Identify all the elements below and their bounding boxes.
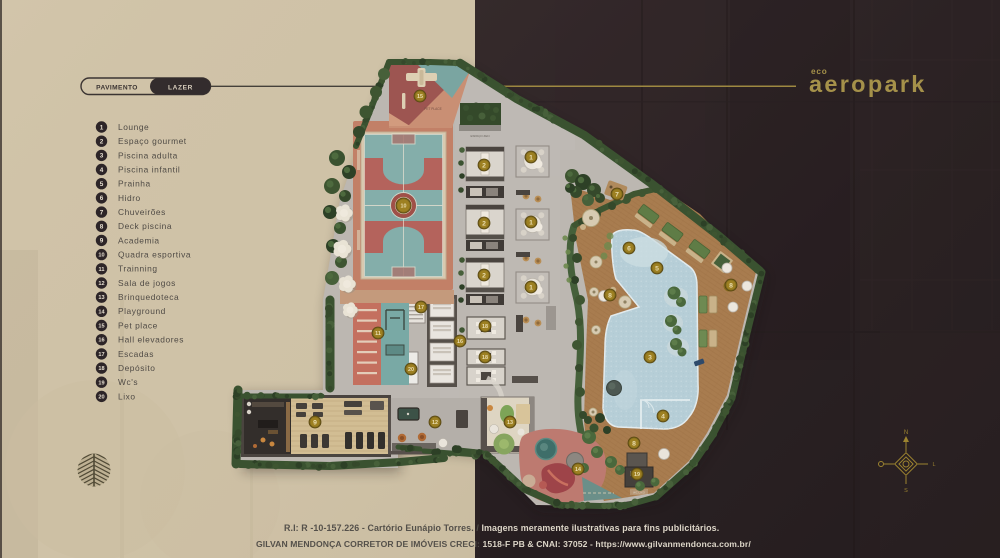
svg-text:Prainha: Prainha: [118, 179, 151, 189]
svg-text:16: 16: [98, 338, 104, 344]
svg-text:18: 18: [482, 324, 488, 330]
svg-text:1: 1: [529, 284, 533, 291]
svg-text:18: 18: [98, 366, 104, 372]
svg-text:Quadra esportiva: Quadra esportiva: [118, 250, 191, 260]
svg-text:Sala de jogos: Sala de jogos: [118, 278, 176, 288]
svg-text:8: 8: [100, 224, 104, 231]
svg-text:Trainning: Trainning: [118, 264, 158, 274]
svg-text:Escadas: Escadas: [118, 349, 154, 359]
svg-text:Chuveirões: Chuveirões: [118, 207, 166, 217]
svg-text:13: 13: [507, 420, 513, 426]
svg-text:7: 7: [615, 191, 619, 198]
svg-text:8: 8: [608, 292, 612, 299]
svg-text:L: L: [932, 462, 935, 468]
svg-text:13: 13: [98, 295, 104, 301]
svg-text:15: 15: [417, 94, 423, 100]
svg-text:PAVIMENTO: PAVIMENTO: [96, 84, 138, 91]
svg-text:4: 4: [661, 413, 665, 420]
svg-text:Lixo: Lixo: [118, 391, 136, 401]
svg-text:Hidro: Hidro: [118, 193, 141, 203]
svg-text:19: 19: [634, 472, 640, 478]
svg-text:10: 10: [401, 203, 407, 209]
svg-text:14: 14: [98, 309, 105, 315]
svg-text:12: 12: [432, 420, 438, 426]
svg-text:9: 9: [100, 238, 104, 245]
svg-text:Wc's: Wc's: [118, 377, 138, 387]
svg-text:3: 3: [648, 354, 652, 361]
svg-text:14: 14: [575, 467, 581, 473]
svg-text:16: 16: [457, 339, 463, 345]
svg-text:9: 9: [313, 419, 317, 426]
svg-text:12: 12: [98, 281, 104, 287]
svg-text:2: 2: [482, 162, 486, 169]
svg-text:WC LIXO: WC LIXO: [633, 491, 646, 495]
svg-text:8: 8: [729, 282, 733, 289]
svg-text:17: 17: [418, 305, 424, 311]
svg-text:10: 10: [98, 253, 104, 259]
svg-text:2: 2: [482, 272, 486, 279]
svg-text:S: S: [904, 488, 908, 494]
svg-text:19: 19: [98, 380, 104, 386]
svg-text:Hall elevadores: Hall elevadores: [118, 335, 184, 345]
svg-text:7: 7: [100, 209, 104, 216]
svg-text:17: 17: [98, 352, 104, 358]
svg-text:ESPAÇO ZEN: ESPAÇO ZEN: [470, 134, 489, 138]
svg-text:18: 18: [482, 355, 488, 361]
svg-text:Academia: Academia: [118, 235, 160, 245]
svg-text:2: 2: [482, 220, 486, 227]
svg-text:Deck piscina: Deck piscina: [118, 221, 172, 231]
svg-text:11: 11: [99, 267, 105, 273]
svg-text:15: 15: [98, 324, 104, 330]
svg-text:6: 6: [100, 195, 104, 202]
svg-text:2: 2: [100, 139, 104, 146]
svg-text:11: 11: [375, 331, 381, 337]
svg-text:R.I: R -10-157.226 - Cartório: R.I: R -10-157.226 - Cartório Eunápio To…: [284, 523, 719, 533]
svg-text:1: 1: [529, 154, 533, 161]
svg-text:8: 8: [632, 440, 636, 447]
svg-text:4: 4: [100, 167, 104, 174]
svg-text:20: 20: [408, 367, 414, 373]
svg-text:Depósito: Depósito: [118, 363, 155, 373]
svg-text:Brinquedoteca: Brinquedoteca: [118, 292, 179, 302]
svg-text:Playground: Playground: [118, 306, 166, 316]
svg-text:Piscina infantil: Piscina infantil: [118, 164, 180, 174]
svg-text:20: 20: [98, 394, 104, 400]
svg-text:5: 5: [655, 265, 659, 272]
svg-text:N: N: [904, 430, 908, 436]
svg-text:GILVAN MENDONÇA CORRETOR DE IM: GILVAN MENDONÇA CORRETOR DE IMÓVEIS CREC…: [256, 538, 751, 549]
svg-text:6: 6: [627, 245, 631, 252]
svg-text:1: 1: [529, 219, 533, 226]
svg-text:aeropark: aeropark: [809, 71, 927, 97]
svg-text:Espaço gourmet: Espaço gourmet: [118, 136, 187, 146]
svg-text:Pet place: Pet place: [118, 320, 158, 330]
svg-text:3: 3: [100, 153, 104, 160]
svg-text:5: 5: [100, 181, 104, 188]
svg-text:1: 1: [100, 124, 104, 131]
svg-text:Lounge: Lounge: [118, 122, 149, 132]
svg-text:LAZER: LAZER: [168, 84, 193, 91]
svg-text:PET PLACE: PET PLACE: [424, 107, 441, 111]
svg-text:Piscina adulta: Piscina adulta: [118, 150, 178, 160]
